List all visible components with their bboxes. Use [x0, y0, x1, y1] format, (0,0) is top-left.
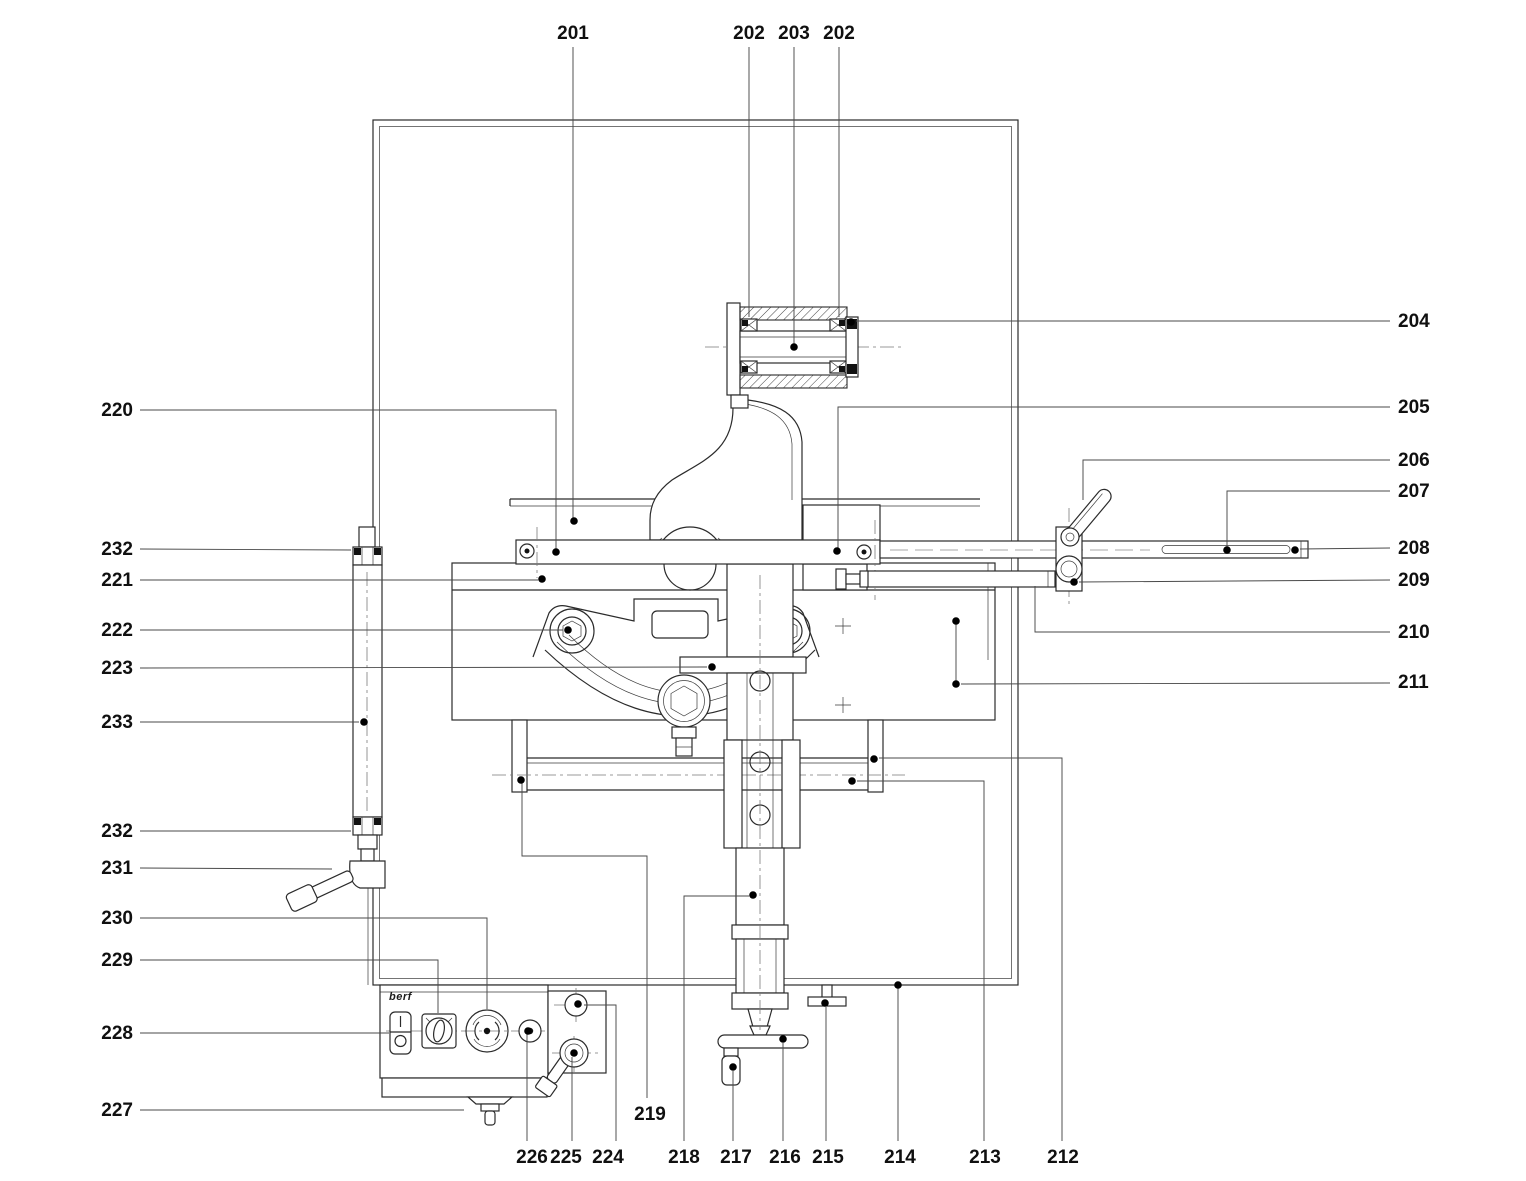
callout-number: 202 — [823, 23, 855, 44]
callout-number: 233 — [101, 712, 133, 733]
callout-number: 222 — [101, 620, 133, 641]
leader-dot — [790, 343, 798, 351]
leader-dot — [538, 575, 546, 583]
bearing-housing-top — [740, 307, 847, 320]
callout-206: 206 — [1083, 450, 1430, 500]
callout-number: 220 — [101, 400, 133, 421]
callout-number: 213 — [969, 1147, 1001, 1168]
callout-203: 203 — [778, 23, 810, 351]
rod-handle — [285, 866, 356, 912]
callout-number: 224 — [592, 1147, 624, 1168]
leader-dot — [1223, 546, 1231, 554]
callout-number: 202 — [733, 23, 765, 44]
leader-dot — [1070, 578, 1078, 586]
trunnion-hub — [658, 675, 710, 727]
leader-line — [140, 549, 351, 550]
leader-dot — [779, 1035, 787, 1043]
crank-handle — [718, 1026, 808, 1048]
callout-number: 208 — [1398, 538, 1430, 559]
leader-line — [1079, 580, 1390, 582]
rod-tube — [353, 565, 382, 817]
callout-227: 227 — [101, 1100, 464, 1121]
callout-204: 204 — [847, 311, 1430, 332]
rod-elbow — [350, 861, 385, 888]
leader-line — [1035, 586, 1390, 632]
callout-202: 202 — [823, 23, 855, 317]
callout-number: 212 — [1047, 1147, 1079, 1168]
callout-number: 216 — [769, 1147, 801, 1168]
callout-number: 201 — [557, 23, 589, 44]
callout-number: 214 — [884, 1147, 916, 1168]
clamp-crossbar — [680, 657, 806, 673]
leader-dot — [848, 777, 856, 785]
leader-dot — [570, 1049, 578, 1057]
console-base — [382, 1078, 547, 1097]
motor-arm — [650, 400, 802, 540]
callout-number: 217 — [720, 1147, 752, 1168]
callout-number: 211 — [1398, 672, 1429, 693]
leader-dot — [833, 547, 841, 555]
callout-number: 209 — [1398, 570, 1430, 591]
callout-205: 205 — [833, 397, 1430, 555]
leader-dot — [517, 776, 525, 784]
callout-number: 207 — [1398, 481, 1430, 502]
callout-212: 212 — [870, 755, 1079, 1168]
chute-spout — [468, 1097, 512, 1125]
leader-dot — [1291, 546, 1299, 554]
leader-dot — [894, 981, 902, 989]
machine-drawing: berf — [0, 0, 1526, 1181]
callout-216: 216 — [769, 1035, 801, 1168]
rod-clamp-top — [353, 547, 382, 565]
callout-number: 232 — [101, 539, 133, 560]
leader-dot — [360, 718, 368, 726]
callout-number: 225 — [550, 1147, 582, 1168]
spindle-bearing-assembly — [705, 303, 905, 408]
callout-232: 232 — [101, 821, 351, 842]
callout-number: 228 — [101, 1023, 133, 1044]
leader-line — [1227, 491, 1390, 547]
callout-231: 231 — [101, 858, 332, 879]
bearing-flange — [727, 303, 740, 395]
selector-switch — [422, 1014, 456, 1048]
callout-233: 233 — [101, 712, 368, 733]
leader-line — [879, 758, 1062, 1141]
callout-228: 228 — [101, 1023, 389, 1044]
callout-214: 214 — [884, 981, 916, 1168]
leader-dot — [570, 517, 578, 525]
leader-line — [1300, 548, 1390, 549]
leader-dot — [708, 663, 716, 671]
callout-211: 211 — [952, 617, 1429, 693]
leader-line — [1083, 460, 1390, 500]
leader-dot — [821, 999, 829, 1007]
guide-channel — [492, 720, 905, 792]
leader-line — [961, 683, 1390, 684]
callout-number: 203 — [778, 23, 810, 44]
callout-number: 230 — [101, 908, 133, 929]
callout-number: 231 — [101, 858, 133, 879]
callout-number: 219 — [634, 1104, 666, 1125]
leader-dot — [870, 755, 878, 763]
callout-209: 209 — [1070, 570, 1430, 591]
callout-number: 229 — [101, 950, 133, 971]
leader-dot — [749, 891, 757, 899]
callout-number: 204 — [1398, 311, 1430, 332]
callout-number: 218 — [668, 1147, 700, 1168]
clamp-knob — [1056, 556, 1082, 582]
leader-line — [857, 781, 984, 1141]
leader-dot — [952, 680, 960, 688]
leader-dot — [729, 1063, 737, 1071]
callout-213: 213 — [848, 777, 1001, 1168]
callout-number: 227 — [101, 1100, 133, 1121]
brand-logo: berf — [389, 991, 413, 1003]
fence-rail-lower — [836, 569, 1055, 589]
callout-number: 205 — [1398, 397, 1430, 418]
callout-201: 201 — [557, 23, 589, 525]
callout-220: 220 — [101, 400, 560, 556]
fence-rail-upper — [880, 541, 1308, 558]
leader-dot — [847, 318, 855, 326]
leader-line — [838, 407, 1390, 549]
callout-215: 215 — [812, 999, 844, 1168]
callout-232: 232 — [101, 539, 351, 560]
callout-number: 221 — [101, 570, 133, 591]
callout-208: 208 — [1291, 538, 1430, 559]
leader-dot — [952, 617, 960, 625]
leader-line — [140, 410, 556, 549]
rod-clamp-bottom — [353, 817, 382, 835]
leader-dot — [564, 626, 572, 634]
guide-rod — [285, 527, 385, 985]
callout-number: 226 — [516, 1147, 548, 1168]
clamp-block — [724, 740, 800, 848]
callout-number: 215 — [812, 1147, 844, 1168]
callout-210: 210 — [1035, 586, 1430, 643]
leader-dot — [524, 1027, 532, 1035]
technical-diagram: berf — [0, 0, 1526, 1181]
callout-202: 202 — [733, 23, 765, 317]
hub-bolt — [672, 727, 696, 756]
leader-line — [140, 868, 332, 869]
callout-number: 210 — [1398, 622, 1430, 643]
callout-number: 223 — [101, 658, 133, 679]
bearing-housing-bottom — [740, 375, 847, 388]
leader-dot — [552, 548, 560, 556]
leader-dot — [574, 1000, 582, 1008]
callout-number: 206 — [1398, 450, 1430, 471]
power-switch — [390, 1012, 411, 1054]
callout-number: 232 — [101, 821, 133, 842]
shaft-end-ring — [846, 317, 858, 377]
